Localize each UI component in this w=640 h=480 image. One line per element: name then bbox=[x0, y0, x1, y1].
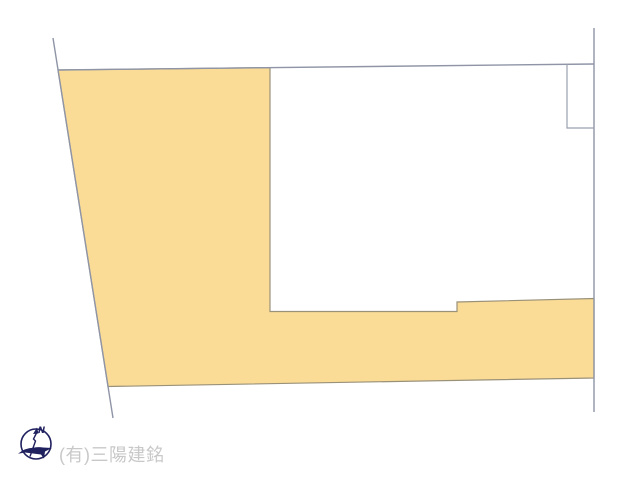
north-compass: N bbox=[18, 426, 52, 459]
plot-diagram-canvas: N (有)三陽建銘 bbox=[0, 0, 640, 480]
plot-diagram: N (有)三陽建銘 bbox=[0, 0, 640, 480]
north-boundary-line bbox=[58, 64, 594, 70]
company-watermark: (有)三陽建銘 bbox=[59, 445, 165, 465]
corner-section-outline bbox=[567, 64, 594, 128]
land-parcel-area bbox=[58, 68, 594, 387]
compass-north-label: N bbox=[38, 426, 45, 436]
